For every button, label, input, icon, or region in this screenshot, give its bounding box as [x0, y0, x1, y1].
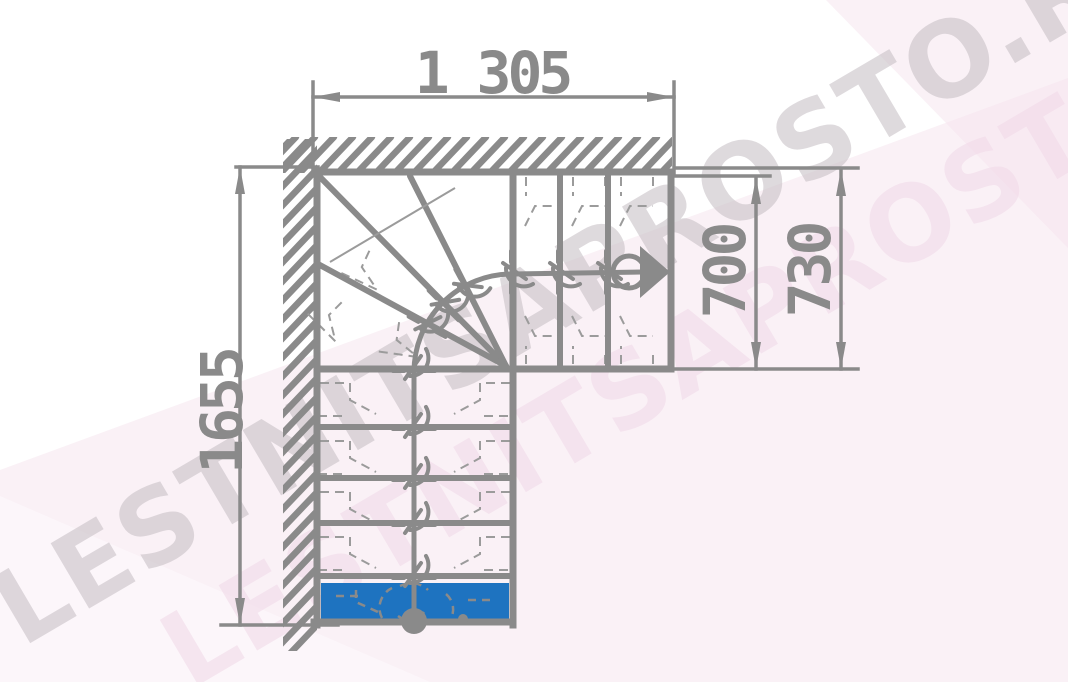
- walk-line-start-circle: [401, 608, 427, 634]
- stair-plan-drawing: LESTNITSAPROSTO.RU LESTNITSAPROSTO.RU: [0, 0, 1068, 682]
- stair-plan-page: LESTNITSAPROSTO.RU LESTNITSAPROSTO.RU: [0, 0, 1068, 682]
- dimension-right-inner-value: 700: [691, 225, 759, 319]
- dimension-top-width-value: 1 305: [415, 39, 570, 107]
- dimension-right-outer-value: 730: [776, 224, 844, 318]
- walk-line-small-dot: [458, 614, 468, 624]
- dimension-left-height-value: 1655: [188, 350, 256, 474]
